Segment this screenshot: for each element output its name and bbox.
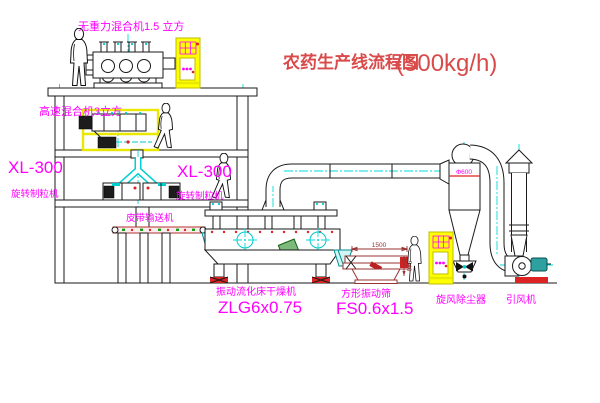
label-cyclone-name: 旋风除尘器	[436, 293, 486, 306]
square-vibrating-sieve	[338, 246, 409, 284]
label-dryer-name: 振动流化床干燥机	[216, 285, 296, 298]
label-high-speed-mixer: 高速混合机3立方	[39, 104, 122, 118]
diagram-title-capacity: (500kg/h)	[396, 50, 497, 77]
person-ground	[408, 236, 421, 281]
gravity-free-mixer	[86, 34, 181, 88]
label-granulator-right-model: XL-300	[177, 162, 232, 181]
label-granulator-right-name: 旋转制粒机	[176, 190, 224, 202]
label-sieve-model: FS0.6x1.5	[336, 299, 414, 318]
label-gravity-mixer: 无重力混合机1.5 立方	[78, 19, 184, 33]
dim-sieve-length: 1500	[372, 242, 387, 249]
diagram-canvas: 无重力混合机1.5 立方 农药生产线流程图 (500kg/h) 高速混合机3立方…	[0, 0, 600, 403]
fluid-bed-dryer	[205, 200, 350, 283]
label-fan-name: 引风机	[506, 293, 536, 306]
control-cabinet-bottom	[429, 232, 453, 284]
cyclone-separator	[449, 142, 480, 280]
granulator-left	[103, 183, 140, 200]
belt-conveyor	[112, 227, 214, 283]
label-cyclone-diameter: Φ600	[456, 169, 472, 176]
exhaust-duct	[273, 160, 449, 207]
cad-flow-diagram: 无重力混合机1.5 立方 农药生产线流程图 (500kg/h) 高速混合机3立方…	[0, 0, 600, 403]
induced-draft-fan	[500, 256, 553, 283]
person-roof	[71, 28, 88, 85]
dim-sieve-height: 540	[405, 261, 412, 272]
label-granulator-left-name: 旋转制粒机	[11, 188, 59, 200]
label-dryer-model: ZLG6x0.75	[218, 298, 302, 317]
granulator-right	[143, 183, 180, 200]
label-granulator-left-model: XL-300	[8, 158, 63, 177]
label-belt-conveyor: 皮带输送机	[126, 212, 174, 224]
control-cabinet-top	[176, 38, 200, 88]
